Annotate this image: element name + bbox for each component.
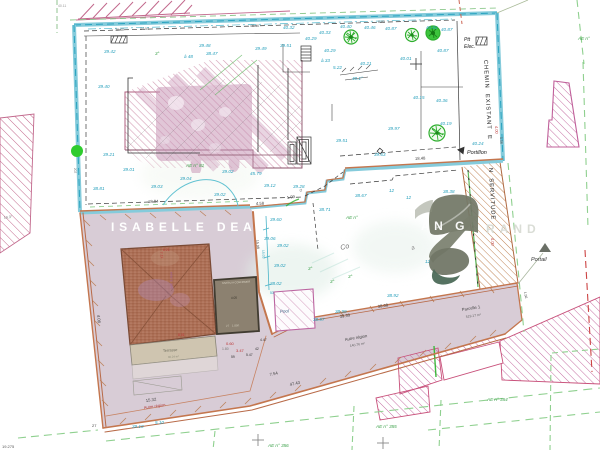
svg-text:4.58: 4.58	[256, 201, 265, 206]
svg-text:59: 59	[231, 355, 235, 359]
svg-text:3°: 3°	[155, 51, 160, 56]
svg-text:4.08: 4.08	[96, 315, 102, 324]
svg-text:39.04: 39.04	[180, 176, 192, 181]
svg-text:40.24: 40.24	[472, 141, 484, 146]
svg-text:39.40: 39.40	[98, 84, 110, 89]
svg-text:40.87: 40.87	[441, 27, 453, 32]
svg-text:40.29: 40.29	[305, 36, 317, 41]
svg-text:40.36: 40.36	[436, 98, 448, 103]
svg-text:Pool: Pool	[280, 308, 290, 314]
svg-text:AN G: AN G	[421, 219, 469, 233]
svg-text:RAND: RAND	[486, 222, 541, 236]
svg-text:40.29: 40.29	[324, 48, 336, 53]
svg-text:38.47: 38.47	[206, 51, 218, 56]
svg-text:30.40: 30.40	[115, 28, 124, 32]
svg-text:12: 12	[406, 195, 412, 200]
svg-text:4.00: 4.00	[490, 238, 495, 247]
svg-text:8.01: 8.01	[178, 333, 185, 337]
svg-text:39.02: 39.02	[274, 263, 286, 268]
svg-text:5.10: 5.10	[155, 420, 164, 425]
svg-text:38.71: 38.71	[319, 207, 331, 212]
svg-text:40.15: 40.15	[413, 95, 425, 100]
svg-text:39.42: 39.42	[104, 49, 116, 54]
svg-text:39.12: 39.12	[264, 183, 276, 188]
svg-text:18.48: 18.48	[415, 155, 426, 161]
svg-text:39.10: 39.10	[132, 424, 144, 429]
svg-text:4.00: 4.00	[494, 126, 499, 135]
svg-text:Elec.: Elec.	[464, 44, 475, 50]
svg-text:à 48: à 48	[184, 54, 193, 59]
svg-text:39.51: 39.51	[280, 43, 292, 48]
svg-text:Portail: Portail	[531, 257, 547, 263]
svg-text:ISABELLE DEAL: ISABELLE DEAL	[111, 220, 269, 234]
svg-text:40.32: 40.32	[283, 25, 295, 30]
svg-text:38.67: 38.67	[355, 193, 367, 198]
svg-text:5.22: 5.22	[333, 65, 342, 70]
svg-text:12: 12	[389, 188, 395, 193]
svg-text:39.49: 39.49	[255, 46, 267, 51]
svg-text:40.40: 40.40	[340, 24, 352, 29]
svg-text:38.02: 38.02	[270, 281, 282, 286]
svg-text:PENTE 35%: PENTE 35%	[169, 272, 174, 289]
svg-text:40.11: 40.11	[58, 4, 66, 8]
svg-text:19.275: 19.275	[2, 444, 15, 449]
svg-text:39.02: 39.02	[277, 243, 289, 248]
svg-text:38.38: 38.38	[443, 189, 455, 194]
svg-text:39.51: 39.51	[336, 138, 348, 143]
svg-text:40.19: 40.19	[440, 121, 452, 126]
svg-text:40.82: 40.82	[426, 25, 438, 30]
svg-text:27 1.89rl: 27 1.89rl	[226, 323, 240, 328]
svg-text:45.79: 45.79	[250, 171, 262, 176]
svg-text:39.02: 39.02	[214, 192, 226, 197]
svg-text:4.05: 4.05	[231, 296, 238, 300]
svg-text:3°: 3°	[330, 279, 335, 284]
svg-text:40.87: 40.87	[385, 26, 397, 31]
svg-text:42: 42	[255, 347, 259, 351]
svg-text:39.03: 39.03	[151, 184, 163, 189]
svg-text:39.60: 39.60	[270, 217, 282, 222]
svg-text:6.93: 6.93	[378, 20, 385, 24]
svg-text:39.02: 39.02	[222, 169, 234, 174]
svg-text:4.47: 4.47	[260, 338, 267, 342]
svg-text:39.06: 39.06	[264, 236, 276, 241]
svg-text:Ptt: Ptt	[464, 37, 471, 43]
svg-text:39.01: 39.01	[123, 167, 135, 172]
svg-text:AE n° 81: AE n° 81	[185, 163, 205, 168]
svg-text:39.97: 39.97	[388, 126, 400, 131]
svg-text:AE n°: AE n°	[577, 36, 590, 41]
svg-text:3°: 3°	[348, 274, 353, 279]
svg-text:38.81: 38.81	[93, 186, 105, 191]
svg-text:27: 27	[92, 423, 97, 428]
svg-text:40.01: 40.01	[400, 56, 412, 61]
svg-text:202: 202	[73, 168, 77, 174]
svg-text:AE n° 354: AE n° 354	[486, 397, 508, 402]
svg-text:18.04: 18.04	[148, 199, 159, 204]
svg-text:6.21: 6.21	[163, 248, 170, 252]
svg-text:AE n°: AE n°	[345, 215, 358, 220]
svg-text:15.03: 15.03	[261, 250, 266, 259]
svg-text:40.1°: 40.1°	[352, 76, 363, 81]
svg-text:39.48: 39.48	[199, 43, 211, 48]
svg-text:46.46: 46.46	[250, 24, 259, 28]
svg-text:40.46: 40.46	[364, 25, 376, 30]
svg-text:AE n° 356: AE n° 356	[267, 443, 289, 448]
svg-text:3°: 3°	[308, 266, 313, 271]
svg-text:1.06: 1.06	[499, 137, 503, 144]
svg-text:40.87: 40.87	[437, 48, 449, 53]
svg-text:39.21: 39.21	[103, 152, 115, 157]
svg-text:38.97: 38.97	[313, 317, 325, 322]
svg-text:38.92: 38.92	[387, 293, 399, 298]
svg-text:AE n° 355: AE n° 355	[375, 424, 397, 429]
svg-text:04.54: 04.54	[140, 27, 149, 31]
svg-text:53: 53	[270, 291, 274, 295]
svg-text:40.24 m²: 40.24 m²	[168, 354, 179, 359]
svg-text:1.80: 1.80	[222, 347, 229, 351]
svg-text:40.33: 40.33	[319, 30, 331, 35]
svg-text:5.47: 5.47	[246, 353, 253, 357]
svg-text:à.33: à.33	[321, 58, 330, 63]
svg-text:40.21: 40.21	[360, 61, 372, 66]
svg-text:39.63: 39.63	[374, 152, 386, 157]
svg-text:Portillon: Portillon	[467, 150, 487, 156]
svg-text:3.47: 3.47	[236, 348, 245, 353]
svg-text:12: 12	[425, 259, 431, 264]
svg-text:0.60: 0.60	[226, 341, 235, 346]
